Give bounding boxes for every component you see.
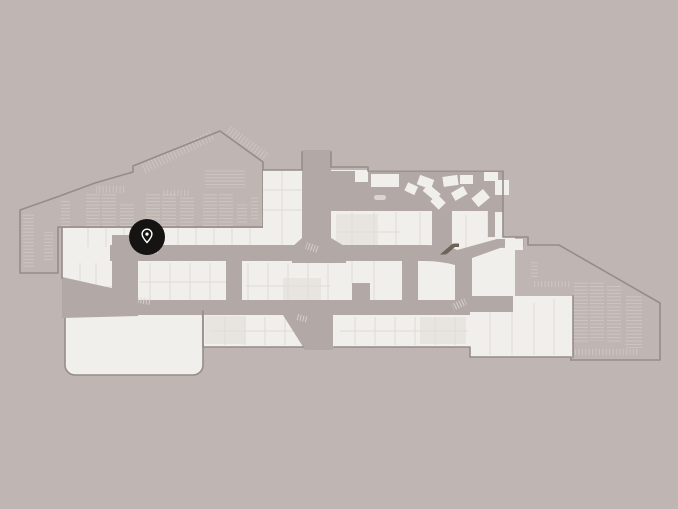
bench-pill <box>374 195 386 200</box>
north-entrance-walkway <box>302 150 331 250</box>
marker-circle <box>129 219 165 255</box>
anchor-store <box>65 308 203 375</box>
floor-map-canvas <box>0 0 678 509</box>
mall-floor-map[interactable] <box>0 0 678 509</box>
location-marker[interactable] <box>129 219 165 255</box>
